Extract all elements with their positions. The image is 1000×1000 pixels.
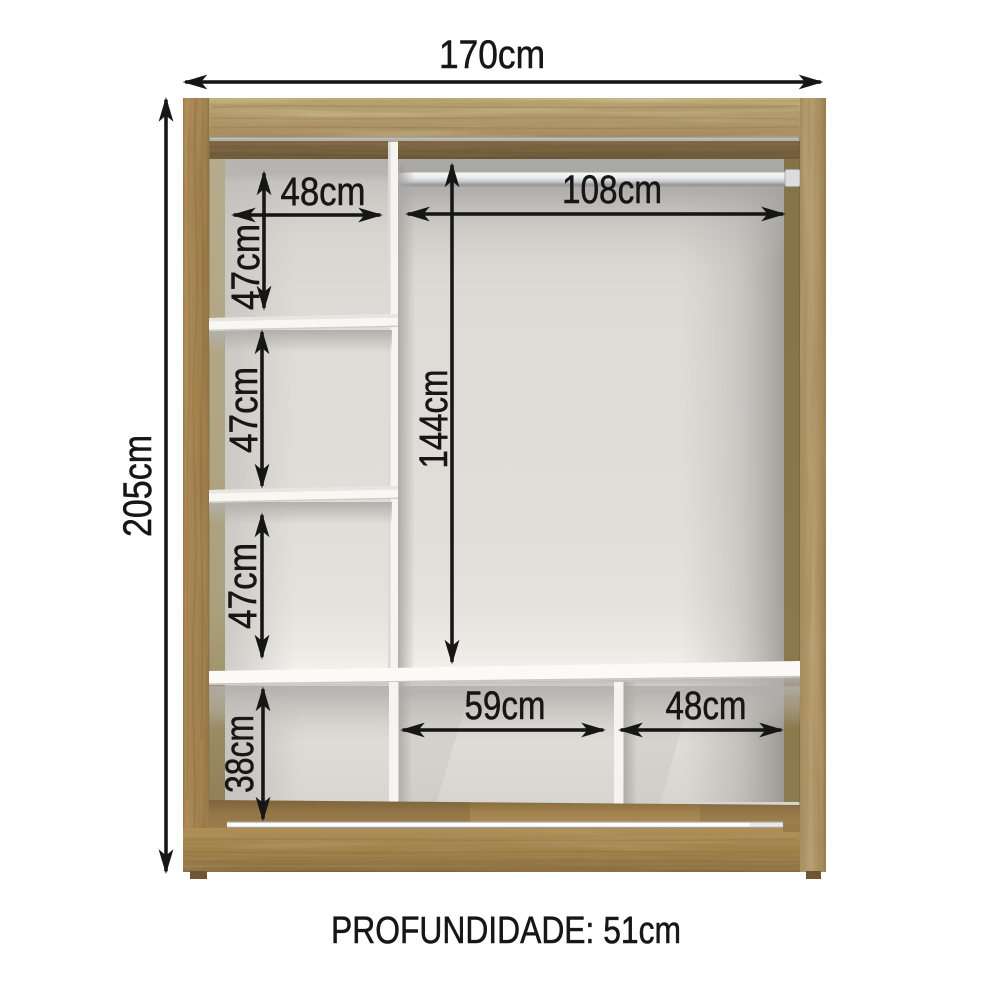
svg-text:59cm: 59cm: [465, 684, 546, 728]
svg-text:205cm: 205cm: [116, 435, 160, 537]
svg-text:47cm: 47cm: [222, 367, 266, 453]
svg-text:170cm: 170cm: [439, 33, 545, 77]
svg-text:144cm: 144cm: [412, 370, 456, 469]
svg-text:48cm: 48cm: [666, 684, 747, 728]
svg-text:48cm: 48cm: [281, 170, 366, 214]
svg-text:PROFUNDIDADE: 51cm: PROFUNDIDADE: 51cm: [331, 910, 681, 952]
svg-text:47cm: 47cm: [224, 224, 268, 310]
svg-text:108cm: 108cm: [562, 168, 662, 212]
svg-text:38cm: 38cm: [218, 715, 262, 793]
svg-text:47cm: 47cm: [221, 543, 265, 629]
